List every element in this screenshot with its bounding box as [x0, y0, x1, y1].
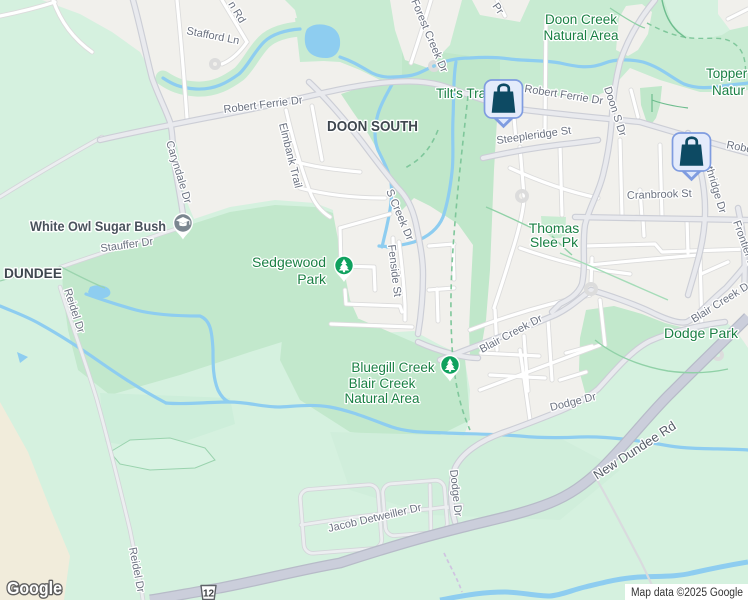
svg-text:White Owl Sugar Bush: White Owl Sugar Bush [30, 219, 166, 234]
svg-text:Blair Creek: Blair Creek [349, 376, 416, 391]
svg-text:Dodge Park: Dodge Park [664, 325, 739, 341]
svg-text:Park: Park [297, 271, 327, 287]
svg-text:Natur: Natur [712, 83, 746, 98]
svg-text:Topper: Topper [706, 66, 748, 81]
svg-text:DOON SOUTH: DOON SOUTH [327, 118, 418, 135]
svg-text:Map data ©2025 Google: Map data ©2025 Google [631, 587, 743, 599]
svg-text:12: 12 [203, 589, 215, 600]
svg-text:Slee Pk: Slee Pk [530, 234, 579, 250]
svg-text:Doon Creek: Doon Creek [545, 12, 617, 27]
svg-text:Natural Area: Natural Area [344, 391, 420, 406]
svg-text:Tilt's Tra: Tilt's Tra [436, 86, 487, 101]
svg-text:Bluegill Creek: Bluegill Creek [351, 360, 435, 375]
svg-text:Natural Area: Natural Area [543, 28, 619, 43]
svg-text:Google: Google [7, 578, 62, 598]
svg-text:DUNDEE: DUNDEE [4, 265, 62, 281]
svg-text:Sedgewood: Sedgewood [252, 254, 326, 270]
svg-text:Cranbrook St: Cranbrook St [627, 188, 692, 202]
